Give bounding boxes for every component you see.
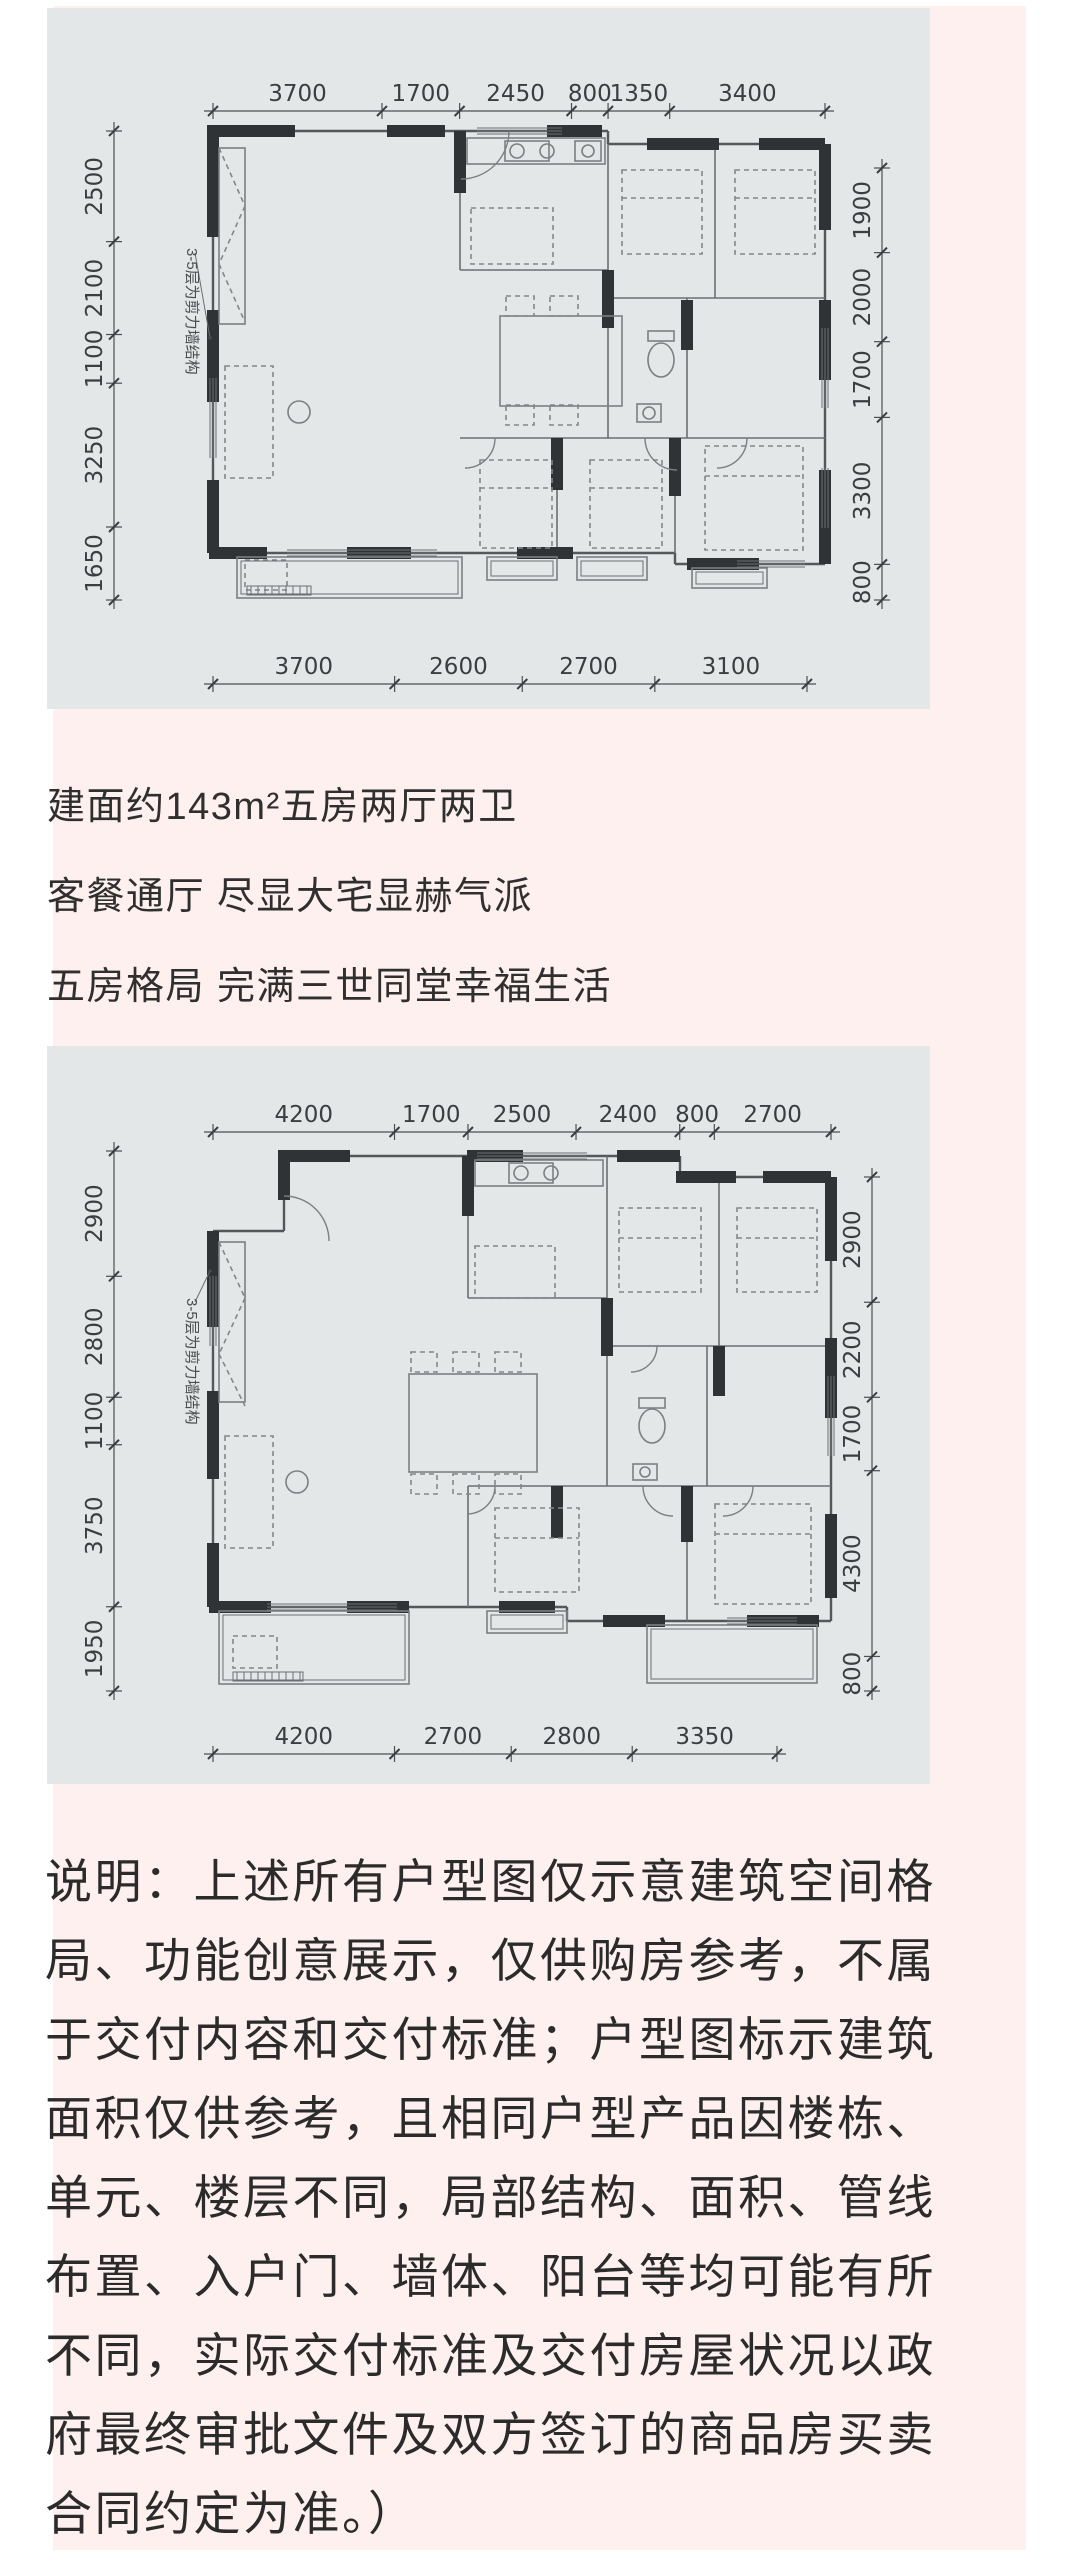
headline-block: 建面约143m²五房两厅两卫 客餐通厅 尽显大宅显赫气派 五房格局 完满三世同堂… [47, 788, 612, 1058]
svg-text:2500: 2500 [82, 157, 108, 216]
svg-text:1700: 1700 [402, 1102, 461, 1128]
svg-text:1900: 1900 [850, 181, 876, 240]
svg-text:1950: 1950 [82, 1620, 108, 1679]
floorplan-1-panel: 3700170024508001350340037002600270031002… [47, 8, 930, 709]
svg-text:2700: 2700 [743, 1102, 802, 1128]
svg-text:2700: 2700 [424, 1724, 483, 1750]
svg-text:3300: 3300 [850, 462, 876, 521]
svg-text:4300: 4300 [840, 1534, 866, 1593]
svg-text:2500: 2500 [493, 1102, 552, 1128]
svg-text:3100: 3100 [702, 654, 761, 680]
svg-text:1350: 1350 [610, 81, 669, 107]
svg-text:1650: 1650 [82, 534, 108, 593]
headline-line-rooms: 五房格局 完满三世同堂幸福生活 [47, 968, 612, 1006]
floorplan-2-drawing: 4200170025002400800270042002700280033502… [47, 1046, 930, 1784]
svg-text:2700: 2700 [559, 654, 618, 680]
svg-text:3350: 3350 [675, 1724, 734, 1750]
svg-text:1700: 1700 [850, 350, 876, 409]
svg-text:3-5层为剪力墙结构: 3-5层为剪力墙结构 [183, 1298, 200, 1425]
svg-text:800: 800 [850, 560, 876, 604]
walls [207, 125, 831, 570]
furniture [210, 128, 828, 598]
svg-text:1700: 1700 [840, 1405, 866, 1464]
svg-text:2200: 2200 [840, 1320, 866, 1379]
svg-text:1100: 1100 [82, 330, 108, 389]
page: 3700170024508001350340037002600270031002… [0, 0, 1080, 2567]
svg-text:3750: 3750 [82, 1496, 108, 1555]
svg-text:2600: 2600 [429, 654, 488, 680]
svg-text:3250: 3250 [82, 426, 108, 485]
svg-text:4200: 4200 [274, 1102, 333, 1128]
svg-text:3700: 3700 [275, 654, 334, 680]
svg-text:800: 800 [675, 1102, 719, 1128]
dimension-lines: 4200170025002400800270042002700280033502… [82, 1102, 880, 1762]
svg-text:800: 800 [840, 1652, 866, 1696]
svg-text:1700: 1700 [392, 81, 451, 107]
svg-text:2400: 2400 [599, 1102, 658, 1128]
svg-text:3-5层为剪力墙结构: 3-5层为剪力墙结构 [183, 248, 200, 375]
svg-text:2450: 2450 [486, 81, 545, 107]
floorplan-1-drawing: 3700170024508001350340037002600270031002… [47, 8, 930, 709]
disclaimer-text: 说明：上述所有户型图仅示意建筑空间格 局、功能创意展示，仅供购房参考，不属 于交… [45, 1842, 963, 2553]
svg-text:800: 800 [568, 81, 612, 107]
svg-text:2900: 2900 [840, 1210, 866, 1269]
svg-text:2000: 2000 [850, 268, 876, 327]
floorplan-2-panel: 4200170025002400800270042002700280033502… [47, 1046, 930, 1784]
svg-text:1100: 1100 [82, 1392, 108, 1451]
svg-text:4200: 4200 [274, 1724, 333, 1750]
walls [207, 1150, 837, 1627]
svg-text:3400: 3400 [718, 81, 777, 107]
headline-line-living: 客餐通厅 尽显大宅显赫气派 [47, 878, 612, 916]
svg-text:2800: 2800 [542, 1724, 601, 1750]
svg-text:2800: 2800 [82, 1307, 108, 1366]
svg-text:2100: 2100 [82, 259, 108, 318]
headline-line-area: 建面约143m²五房两厅两卫 [47, 788, 612, 826]
svg-text:2900: 2900 [82, 1184, 108, 1243]
svg-text:3700: 3700 [268, 81, 327, 107]
